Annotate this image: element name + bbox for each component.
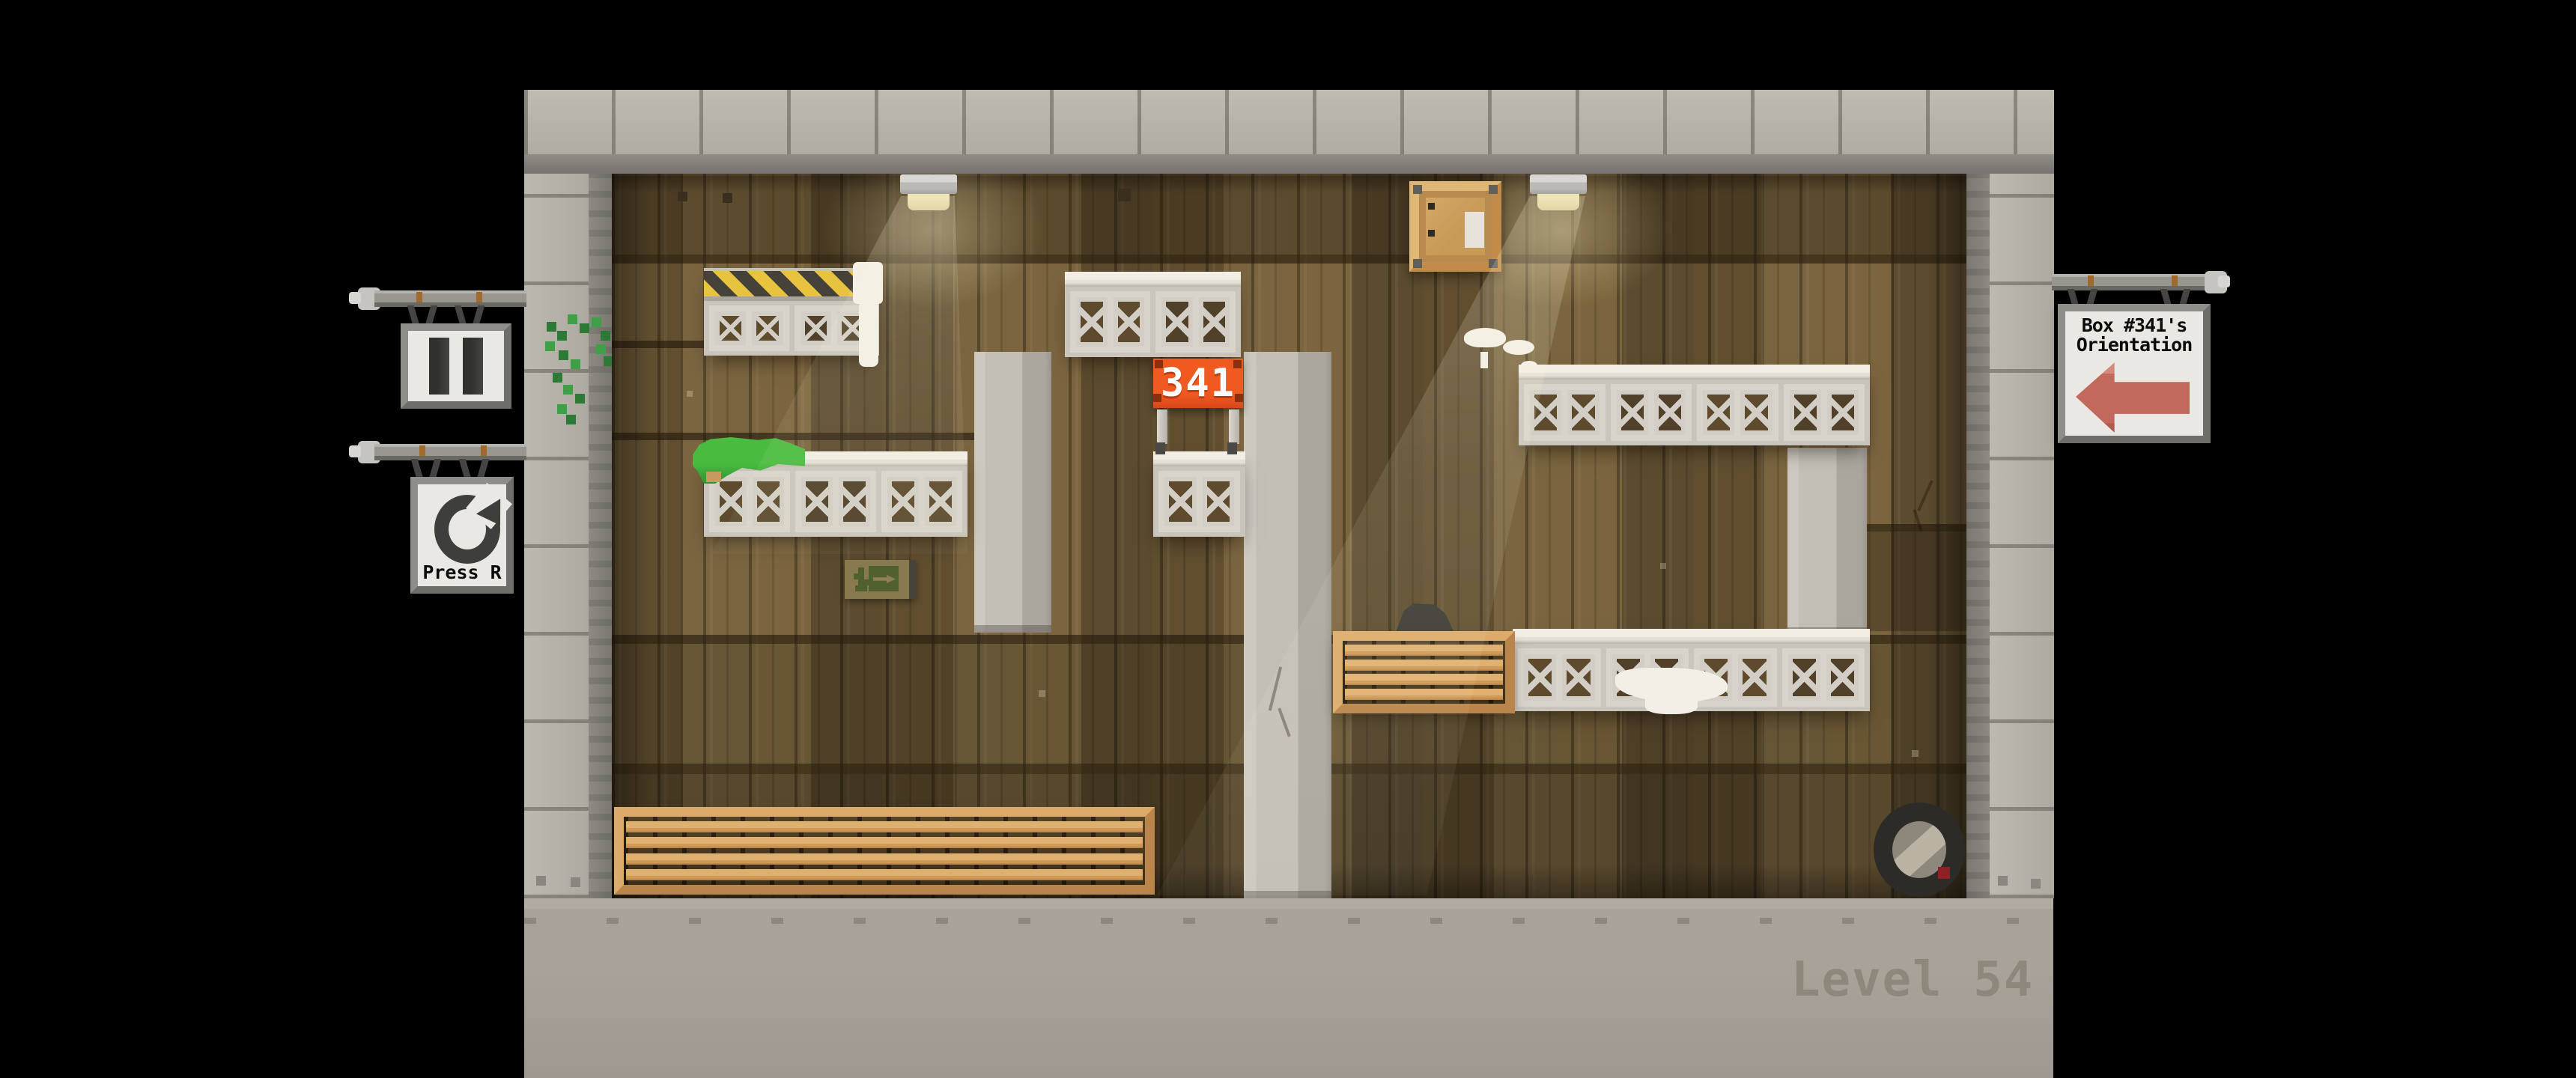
box-bolt — [1155, 360, 1163, 368]
cinder-block — [1784, 384, 1865, 441]
cinder-hole — [1827, 390, 1859, 435]
orientation-sign: Box #341's Orientation — [2058, 304, 2211, 443]
vine-leaf — [580, 323, 589, 333]
concrete-pillar-short — [974, 352, 1051, 633]
cinder-hole — [1617, 390, 1648, 435]
left-wall-shadow — [612, 174, 651, 898]
wood-slat — [626, 837, 1143, 848]
wall-beam-seam — [612, 255, 1966, 264]
wall-crack — [1917, 480, 1933, 511]
pole-rust — [2172, 275, 2178, 286]
cinder-hole — [1788, 654, 1820, 701]
wooden-crate — [1409, 181, 1501, 272]
frame-left-column — [524, 90, 589, 898]
restart-label: Press R — [418, 561, 506, 583]
wood-slat — [1345, 689, 1503, 700]
wall-beam-seam — [1866, 524, 1966, 532]
warehouse-floor: Level 54 — [524, 898, 2053, 1078]
cinder-hole — [1076, 297, 1108, 347]
vine-leaf — [592, 317, 601, 327]
dark-debris — [1390, 603, 1459, 633]
crate-bolt — [1489, 259, 1498, 268]
vine-leaf — [571, 359, 580, 369]
cinder-hole — [1654, 390, 1686, 435]
cinder-block — [1524, 384, 1606, 441]
box-bolt — [1153, 394, 1161, 402]
ceiling-shadow — [612, 174, 1966, 193]
cinder-hole — [801, 477, 833, 526]
wooden-pallet — [1333, 631, 1515, 713]
cinder-block-row — [704, 301, 879, 356]
cinder-hole — [801, 311, 831, 345]
wall-top-band — [612, 176, 1966, 255]
pause-sign[interactable] — [401, 323, 511, 409]
level-indicator: Level 54 — [1791, 952, 2034, 1008]
paint-drip — [859, 301, 878, 367]
arrow-left-icon — [2076, 358, 2190, 436]
vine-leaf — [601, 331, 610, 341]
pillar-crack — [1269, 666, 1282, 710]
vine-leaf — [568, 314, 577, 324]
orientation-title-line2: Orientation — [2065, 335, 2203, 355]
pole-tip-bump — [2218, 275, 2230, 287]
cinder-hole — [1524, 654, 1556, 701]
cinder-block-row — [1065, 287, 1241, 357]
bracket-rail — [1229, 409, 1239, 444]
paint-splat — [1645, 696, 1698, 714]
cinder-hole — [752, 311, 783, 345]
cinder-block-row — [704, 466, 967, 537]
cinder-hole — [1203, 477, 1235, 526]
concrete-pillar-right — [1787, 448, 1867, 635]
vine-leaf — [557, 331, 567, 341]
tire — [1874, 803, 1965, 897]
cinder-hole — [1703, 390, 1734, 435]
wall-shadow-patch — [1866, 532, 1966, 631]
sign-pole — [2052, 274, 2211, 290]
frame-top-inner-strip — [524, 154, 2054, 174]
right-wall-shadow — [1928, 174, 1966, 898]
bracket-rail — [1157, 409, 1167, 444]
frame-right-inner-strip — [1966, 154, 1990, 898]
tile-dot — [2031, 879, 2041, 889]
cinder-block — [1782, 648, 1865, 707]
tile-dot — [571, 877, 580, 887]
cinder-hole — [1826, 654, 1859, 701]
vine-leaf — [575, 394, 585, 404]
crate-dot — [1428, 203, 1435, 210]
cinder-block — [1158, 471, 1240, 532]
box-bolt — [1235, 394, 1243, 402]
pause-icon — [408, 331, 504, 401]
pole-rust — [476, 292, 482, 302]
cinder-platform-top-middle — [1065, 272, 1241, 357]
room-interior: 341 — [612, 174, 1966, 898]
pole-rust — [416, 292, 422, 302]
game-viewport: Level 54 — [0, 0, 2576, 1078]
crate-bolt — [1413, 259, 1422, 268]
wood-slat — [1345, 645, 1503, 656]
wall-speck — [1912, 750, 1919, 757]
orientation-title-line1: Box #341's — [2065, 316, 2203, 335]
cinder-block — [709, 471, 790, 532]
ceiling-lamp-shade — [908, 194, 950, 210]
cinder-block — [1518, 648, 1601, 707]
restart-icon — [434, 495, 500, 564]
pole-rust — [481, 445, 487, 456]
vine-leaf — [563, 385, 573, 395]
pole-rust — [419, 445, 425, 456]
paint-splat — [1464, 328, 1506, 347]
cinder-block-row — [1519, 380, 1870, 445]
cinder-hole — [1738, 654, 1770, 701]
cinder-block — [795, 471, 876, 532]
wood-slat — [1345, 674, 1503, 685]
dirt-clump — [706, 472, 721, 482]
frame-left-inner-strip — [589, 154, 612, 898]
cinder-platform-upper-right — [1519, 365, 1870, 445]
paint-drip — [853, 262, 883, 304]
tire-red-mark — [1938, 867, 1950, 879]
cinder-hole — [1161, 297, 1193, 347]
crate-bolt — [1413, 185, 1422, 194]
vine-leaf — [547, 322, 556, 332]
concrete-pillar-tall — [1244, 352, 1331, 898]
pole-tip-bump — [349, 445, 361, 457]
frame-top-band — [524, 90, 2054, 154]
vine-leaf — [553, 373, 562, 383]
wall-speck — [1660, 563, 1666, 569]
wall-vent-square — [1118, 189, 1131, 201]
platform-cap — [1519, 365, 1870, 380]
sign-pole — [374, 444, 526, 460]
cinder-hole — [1790, 390, 1821, 435]
vine-leaf — [559, 350, 568, 360]
cinder-hole — [1199, 297, 1230, 347]
cinder-block — [1697, 384, 1778, 441]
box-bolt — [1233, 360, 1242, 368]
cinder-hole — [1567, 390, 1599, 435]
cinder-hole — [715, 477, 747, 526]
cinder-hole — [1740, 390, 1772, 435]
cinder-block — [1611, 384, 1692, 441]
vine-leaf — [545, 341, 555, 351]
tile-dot — [536, 876, 546, 886]
wood-slat — [626, 821, 1143, 832]
cinder-hole — [1530, 390, 1561, 435]
cinder-block-row — [1153, 466, 1245, 537]
wall-beam-seam — [612, 433, 976, 440]
vine-leaf — [557, 404, 567, 414]
crate-bolt — [1489, 185, 1498, 194]
vine-leaf — [596, 344, 606, 354]
cinder-hole — [1164, 477, 1197, 526]
cinder-hole — [839, 477, 870, 526]
sign-pole — [374, 290, 526, 307]
ceiling-lamp-fixture — [900, 174, 957, 194]
paint-splat — [1480, 352, 1488, 368]
wood-slat — [1345, 660, 1503, 671]
restart-sign[interactable]: Press R — [410, 477, 514, 594]
crate-label — [1465, 212, 1484, 248]
pole-tip-bump — [349, 292, 361, 304]
cinder-block — [1155, 291, 1236, 353]
wall-speck — [1039, 690, 1045, 697]
nail-head — [678, 192, 687, 201]
pillar-crack — [1278, 708, 1290, 737]
tire-ring — [1874, 803, 1965, 897]
frame-right-column — [1990, 90, 2054, 898]
vine-leaf — [566, 415, 576, 424]
numbered-box-341[interactable]: 341 — [1153, 359, 1243, 408]
tile-dot — [1998, 876, 2008, 886]
platform-cap — [1513, 629, 1870, 644]
cinder-hole — [1562, 654, 1594, 701]
cinder-hole — [887, 477, 919, 526]
ceiling-lamp-shade — [1537, 194, 1579, 210]
paint-splat — [1521, 361, 1537, 370]
ceiling-lamp-fixture — [1530, 174, 1587, 194]
cinder-block-single — [1153, 451, 1245, 537]
cinder-hole — [753, 477, 784, 526]
crate-dot — [1428, 230, 1435, 237]
cinder-hole — [925, 477, 956, 526]
wood-slat — [626, 869, 1143, 880]
nail-head — [723, 193, 732, 203]
cinder-block — [881, 471, 962, 532]
pole-rust — [2088, 275, 2094, 286]
wood-slat — [626, 853, 1143, 865]
platform-cap — [1065, 272, 1241, 287]
cinder-hole — [1114, 297, 1145, 347]
paint-splat — [1503, 340, 1534, 355]
wall-speck — [687, 391, 693, 397]
wooden-bench — [614, 807, 1155, 895]
cinder-block — [709, 305, 789, 351]
cinder-hole — [715, 311, 746, 345]
exit-sign — [845, 560, 916, 599]
box-number-label: 341 — [1161, 361, 1236, 406]
cinder-block — [1070, 291, 1150, 353]
